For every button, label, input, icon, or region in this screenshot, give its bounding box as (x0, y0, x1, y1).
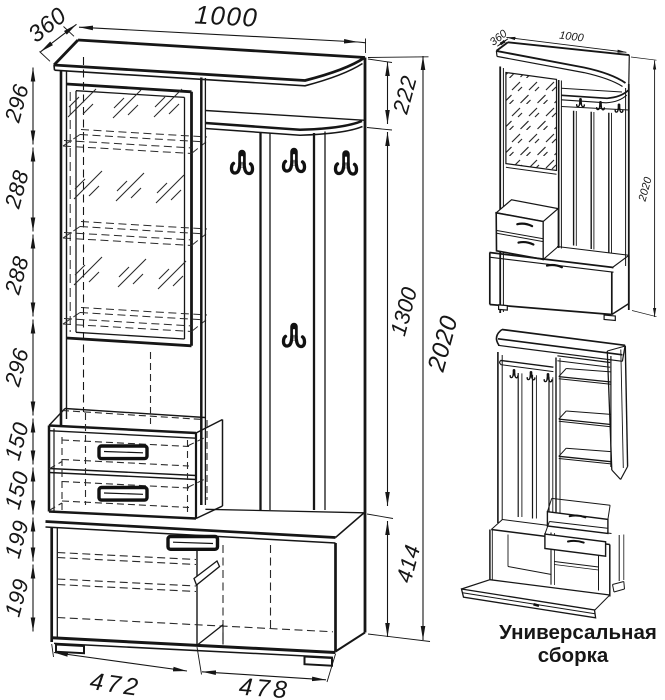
svg-text:360: 360 (23, 2, 71, 48)
svg-text:2020: 2020 (423, 313, 464, 376)
svg-text:199: 199 (0, 576, 34, 619)
svg-text:1000: 1000 (558, 30, 585, 45)
svg-text:414: 414 (391, 542, 425, 585)
svg-text:199: 199 (0, 517, 34, 560)
svg-text:222: 222 (387, 73, 421, 117)
svg-text:сборка: сборка (538, 644, 609, 667)
svg-text:472: 472 (88, 668, 143, 700)
svg-text:1000: 1000 (194, 0, 259, 33)
svg-text:296: 296 (0, 81, 34, 126)
svg-text:1300: 1300 (385, 284, 422, 338)
svg-text:Универсальная: Универсальная (499, 621, 657, 644)
svg-text:150: 150 (0, 468, 34, 512)
svg-text:288: 288 (0, 253, 34, 298)
svg-text:2020: 2020 (636, 175, 654, 204)
svg-text:150: 150 (0, 419, 34, 463)
svg-text:478: 478 (238, 674, 291, 700)
svg-text:296: 296 (0, 345, 34, 390)
svg-text:288: 288 (0, 167, 34, 212)
